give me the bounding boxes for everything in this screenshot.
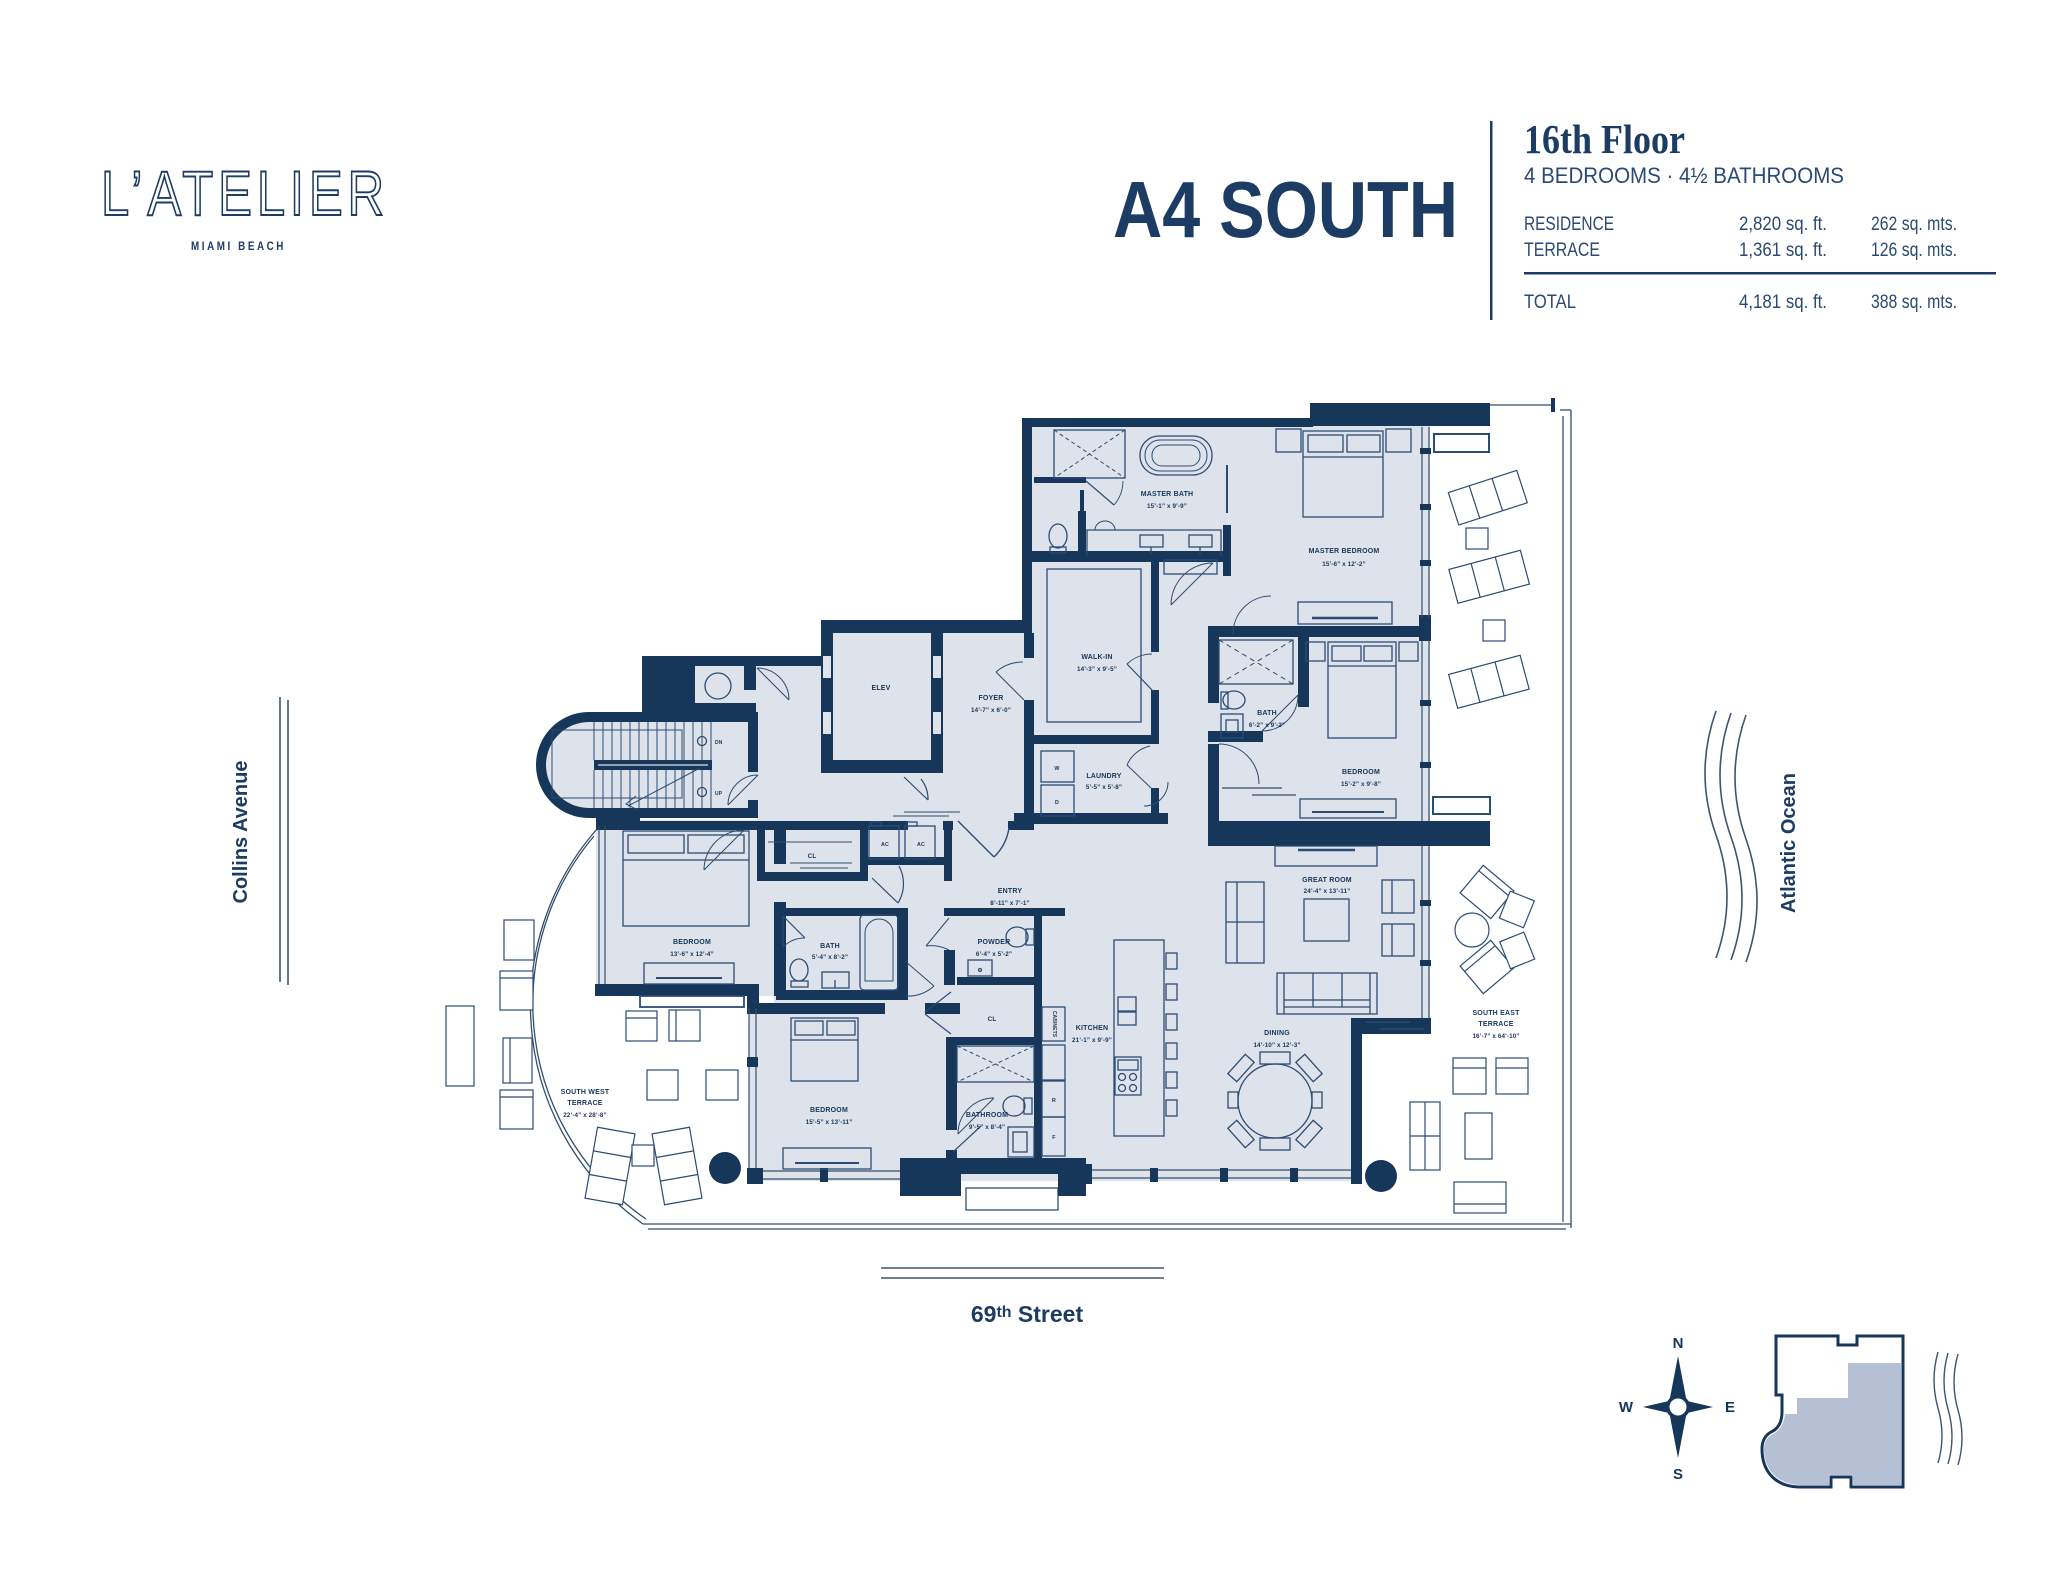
svg-text:S: S: [1673, 1466, 1683, 1483]
svg-text:388 sq. mts.: 388 sq. mts.: [1871, 292, 1957, 313]
svg-text:MASTER BATH: MASTER BATH: [1141, 491, 1194, 498]
svg-text:MASTER BEDROOM: MASTER BEDROOM: [1309, 548, 1380, 555]
svg-text:15’-2” x 9’-8”: 15’-2” x 9’-8”: [1341, 781, 1381, 788]
svg-text:21’-1” x 9’-9”: 21’-1” x 9’-9”: [1072, 1037, 1112, 1044]
svg-text:ELEV: ELEV: [871, 685, 890, 692]
svg-text:TERRACE: TERRACE: [1524, 240, 1600, 261]
svg-text:E: E: [1725, 1399, 1735, 1416]
svg-text:13’-6” x 12’-4”: 13’-6” x 12’-4”: [670, 951, 714, 958]
svg-text:UP: UP: [715, 791, 723, 797]
svg-text:9’-5” x 8’-4”: 9’-5” x 8’-4”: [969, 1124, 1005, 1131]
svg-text:DN: DN: [715, 740, 723, 746]
svg-text:AC: AC: [881, 842, 889, 848]
svg-text:KITCHEN: KITCHEN: [1076, 1025, 1109, 1032]
svg-text:14’-7” x 6’-0”: 14’-7” x 6’-0”: [971, 707, 1011, 714]
svg-text:F: F: [1052, 1135, 1056, 1141]
svg-text:Collins Avenue: Collins Avenue: [230, 761, 252, 904]
svg-text:N: N: [1673, 1335, 1684, 1352]
svg-text:2,820 sq. ft.: 2,820 sq. ft.: [1739, 214, 1827, 235]
svg-text:Atlantic Ocean: Atlantic Ocean: [1778, 773, 1800, 913]
svg-text:22’-4” x 28’-8”: 22’-4” x 28’-8”: [563, 1112, 607, 1119]
svg-text:SOUTH EAST: SOUTH EAST: [1472, 1010, 1520, 1017]
svg-text:W: W: [1619, 1399, 1634, 1416]
svg-text:DINING: DINING: [1264, 1030, 1290, 1037]
svg-text:BATH: BATH: [820, 943, 840, 950]
svg-text:GREAT ROOM: GREAT ROOM: [1302, 877, 1352, 884]
svg-text:SOUTH WEST: SOUTH WEST: [561, 1089, 610, 1096]
svg-text:CL: CL: [808, 853, 817, 860]
svg-text:BATH: BATH: [1257, 710, 1277, 717]
svg-text:126 sq. mts.: 126 sq. mts.: [1871, 240, 1957, 261]
svg-text:WALK-IN: WALK-IN: [1081, 654, 1112, 661]
svg-text:5’-4” x 8’-2”: 5’-4” x 8’-2”: [812, 954, 848, 961]
svg-text:POWDER: POWDER: [978, 939, 1011, 946]
svg-text:CL: CL: [988, 1016, 997, 1023]
svg-text:W: W: [1054, 766, 1059, 772]
svg-text:L’ATELIER: L’ATELIER: [101, 159, 389, 229]
svg-text:BEDROOM: BEDROOM: [673, 939, 711, 946]
svg-text:RESIDENCE: RESIDENCE: [1524, 214, 1614, 235]
svg-text:4 BEDROOMS · 4½ BATHROOMS: 4 BEDROOMS · 4½ BATHROOMS: [1524, 163, 1844, 188]
svg-text:CABINETS: CABINETS: [1051, 1011, 1057, 1038]
svg-text:6’-4” x 5’-2”: 6’-4” x 5’-2”: [976, 951, 1012, 958]
svg-text:D: D: [1055, 800, 1059, 806]
svg-text:R: R: [1052, 1098, 1056, 1104]
svg-text:5’-5” x 5’-8”: 5’-5” x 5’-8”: [1086, 784, 1122, 791]
svg-text:15’-6” x 12’-2”: 15’-6” x 12’-2”: [1322, 561, 1366, 568]
svg-text:14’-10” x 12’-3”: 14’-10” x 12’-3”: [1253, 1042, 1300, 1049]
svg-text:BEDROOM: BEDROOM: [810, 1107, 848, 1114]
svg-text:16th Floor: 16th Floor: [1524, 116, 1685, 162]
svg-text:69th Street: 69th Street: [971, 1301, 1084, 1327]
svg-text:ENTRY: ENTRY: [998, 888, 1023, 895]
svg-text:TOTAL: TOTAL: [1524, 292, 1576, 313]
svg-text:FOYER: FOYER: [978, 695, 1003, 702]
svg-text:262 sq. mts.: 262 sq. mts.: [1871, 214, 1957, 235]
svg-text:16’-7” x 64’-10”: 16’-7” x 64’-10”: [1472, 1033, 1519, 1040]
svg-text:4,181 sq. ft.: 4,181 sq. ft.: [1739, 292, 1827, 313]
svg-text:BATHROOM: BATHROOM: [966, 1112, 1008, 1119]
svg-text:TERRACE: TERRACE: [567, 1100, 602, 1107]
svg-text:A4 SOUTH: A4 SOUTH: [1113, 165, 1458, 254]
svg-text:LAUNDRY: LAUNDRY: [1086, 773, 1121, 780]
svg-text:6’-2” x 9’-2”: 6’-2” x 9’-2”: [1249, 722, 1285, 729]
svg-text:8’-11” x 7’-1”: 8’-11” x 7’-1”: [990, 900, 1030, 907]
svg-text:AC: AC: [917, 842, 925, 848]
svg-text:TERRACE: TERRACE: [1478, 1021, 1513, 1028]
svg-text:15’-1” x 9’-9”: 15’-1” x 9’-9”: [1147, 503, 1187, 510]
svg-text:1,361 sq. ft.: 1,361 sq. ft.: [1739, 240, 1827, 261]
svg-text:BEDROOM: BEDROOM: [1342, 769, 1380, 776]
svg-text:MIAMI BEACH: MIAMI BEACH: [191, 241, 286, 253]
svg-text:14’-3” x 9’-5”: 14’-3” x 9’-5”: [1077, 666, 1117, 673]
svg-text:24’-4” x 13’-11”: 24’-4” x 13’-11”: [1304, 888, 1351, 895]
svg-text:15’-5” x 13’-11”: 15’-5” x 13’-11”: [806, 1119, 853, 1126]
